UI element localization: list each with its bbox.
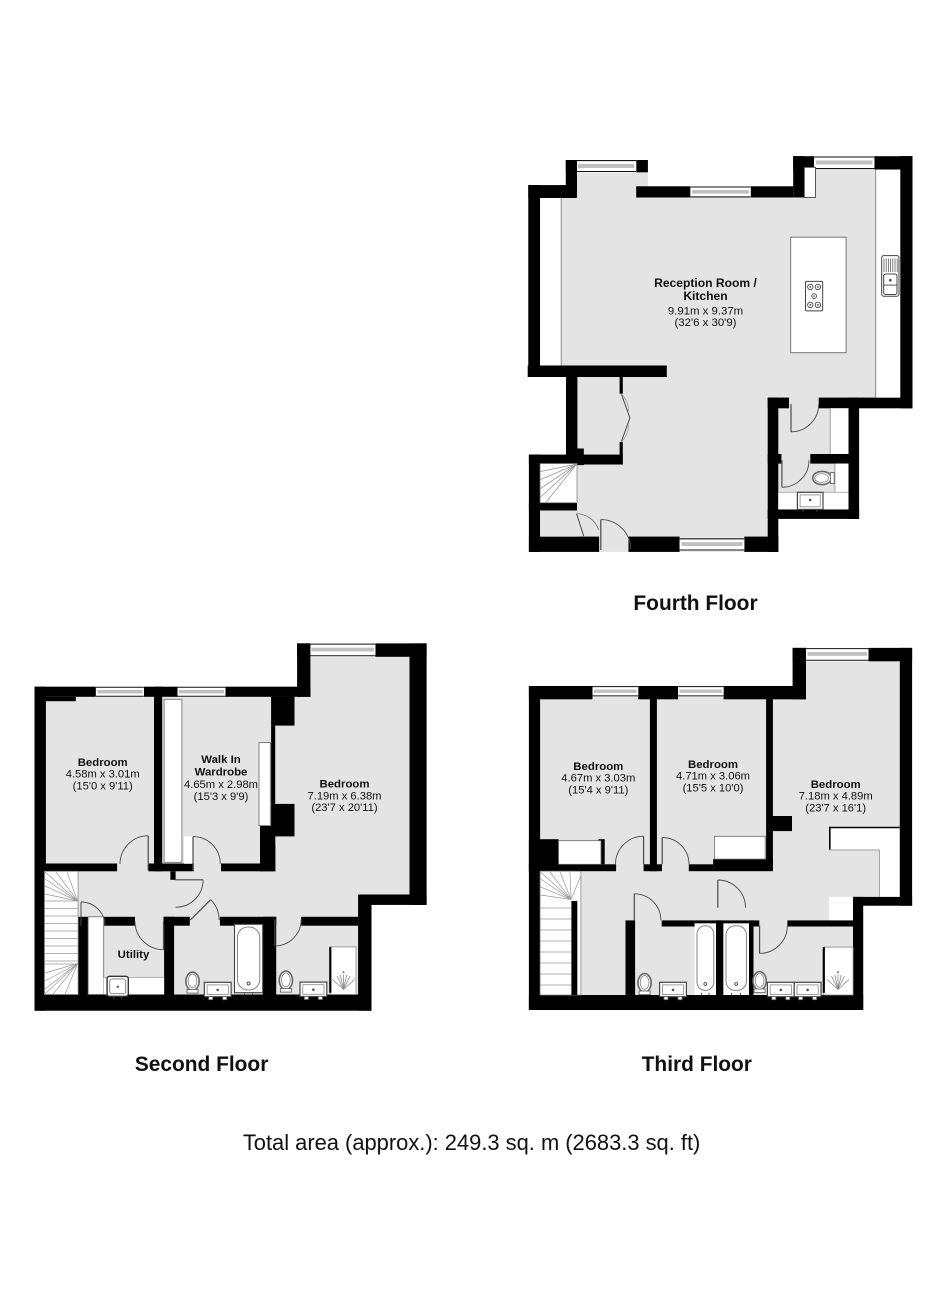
svg-text:Fourth Floor: Fourth Floor bbox=[633, 592, 757, 615]
svg-text:4.71m x 3.06m: 4.71m x 3.06m bbox=[676, 771, 750, 783]
svg-text:7.18m x 4.89m: 7.18m x 4.89m bbox=[799, 791, 873, 803]
svg-text:Reception Room /: Reception Room / bbox=[654, 276, 757, 290]
svg-text:(15'4 x 9'11): (15'4 x 9'11) bbox=[568, 784, 628, 796]
svg-text:Utility: Utility bbox=[118, 949, 150, 961]
svg-text:Bedroom: Bedroom bbox=[78, 757, 128, 769]
svg-text:Bedroom: Bedroom bbox=[811, 779, 861, 791]
svg-text:(15'3 x 9'9): (15'3 x 9'9) bbox=[194, 791, 249, 803]
svg-text:(23'7 x 20'11): (23'7 x 20'11) bbox=[311, 802, 378, 814]
svg-text:Bedroom: Bedroom bbox=[688, 759, 738, 771]
svg-text:4.65m x 2.98m: 4.65m x 2.98m bbox=[184, 779, 258, 791]
svg-text:Wardrobe: Wardrobe bbox=[195, 767, 248, 779]
svg-text:(32'6 x 30'9): (32'6 x 30'9) bbox=[675, 317, 737, 329]
svg-text:7.19m x 6.38m: 7.19m x 6.38m bbox=[308, 791, 382, 803]
svg-text:Third Floor: Third Floor bbox=[642, 1053, 752, 1076]
svg-text:(15'5 x 10'0): (15'5 x 10'0) bbox=[683, 782, 744, 794]
svg-text:(23'7 x 16'1): (23'7 x 16'1) bbox=[805, 802, 866, 814]
svg-text:9.91m x 9.37m: 9.91m x 9.37m bbox=[668, 306, 743, 318]
svg-text:Second Floor: Second Floor bbox=[135, 1053, 268, 1076]
svg-text:Total area (approx.): 249.3 sq: Total area (approx.): 249.3 sq. m (2683.… bbox=[243, 1130, 701, 1155]
svg-text:Bedroom: Bedroom bbox=[573, 761, 623, 773]
svg-text:Bedroom: Bedroom bbox=[320, 779, 370, 791]
svg-text:4.58m x 3.01m: 4.58m x 3.01m bbox=[66, 769, 140, 781]
svg-text:(15'0 x 9'11): (15'0 x 9'11) bbox=[73, 780, 133, 792]
svg-text:4.67m x 3.03m: 4.67m x 3.03m bbox=[561, 773, 635, 785]
svg-text:Kitchen: Kitchen bbox=[683, 289, 727, 303]
svg-text:Walk In: Walk In bbox=[201, 754, 240, 766]
